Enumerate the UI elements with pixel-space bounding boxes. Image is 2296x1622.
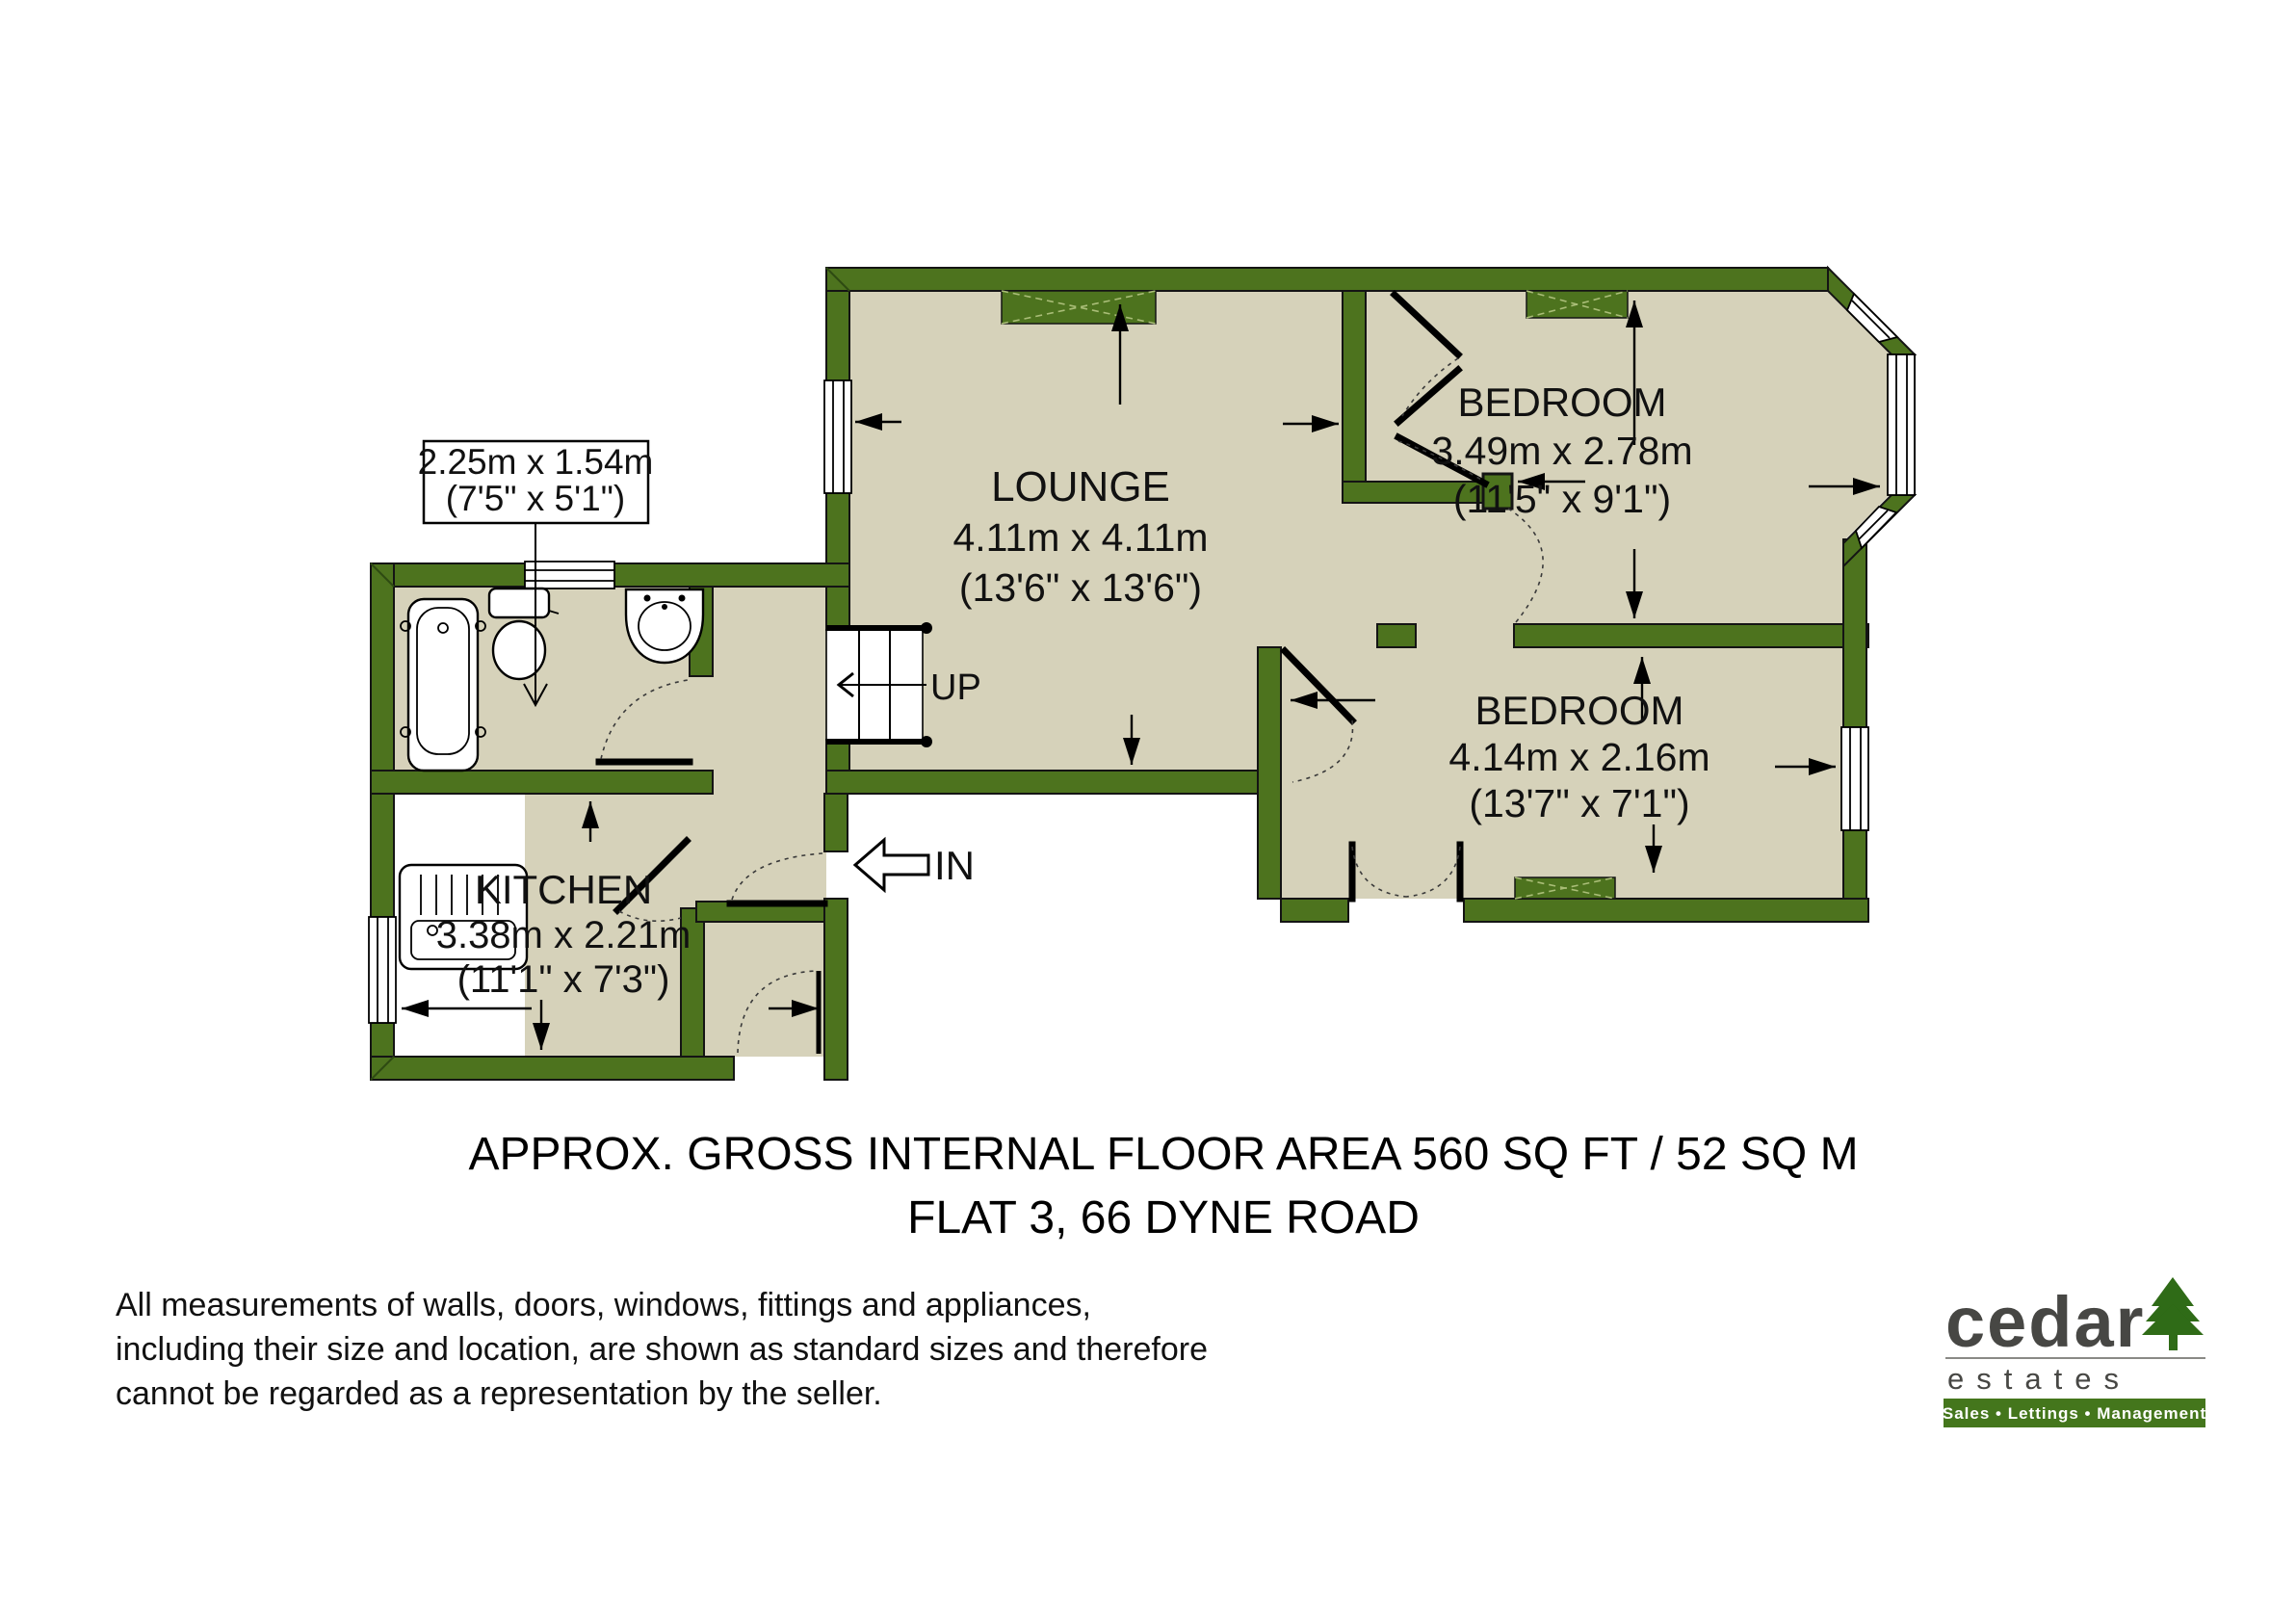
logo-sub-text: estates bbox=[1947, 1362, 2131, 1396]
lounge-window bbox=[824, 380, 851, 493]
bedroom1-name: BEDROOM bbox=[1457, 379, 1666, 425]
floorplan-drawing: UP bbox=[0, 0, 2296, 1622]
logo-brand-text: cedar bbox=[1945, 1282, 2145, 1362]
footer-titles: APPROX. GROSS INTERNAL FLOOR AREA 560 SQ… bbox=[468, 1129, 1858, 1243]
cedar-tree-icon bbox=[2142, 1277, 2204, 1350]
disclaimer: All measurements of walls, doors, window… bbox=[116, 1287, 1208, 1412]
address-title: FLAT 3, 66 DYNE ROAD bbox=[907, 1192, 1420, 1243]
lounge-name: LOUNGE bbox=[991, 463, 1170, 510]
entrance-in: IN bbox=[855, 840, 975, 890]
bedroom2-name: BEDROOM bbox=[1474, 688, 1683, 733]
bathroom-dim-metric: 2.25m x 1.54m bbox=[418, 442, 654, 482]
bathroom-dim-imperial: (7'5" x 5'1") bbox=[446, 479, 625, 518]
bathroom-window bbox=[525, 562, 614, 589]
entrance-in-icon bbox=[855, 840, 928, 890]
disclaimer-line2: including their size and location, are s… bbox=[116, 1331, 1208, 1368]
floor-area-title: APPROX. GROSS INTERNAL FLOOR AREA 560 SQ… bbox=[468, 1129, 1858, 1180]
bathtub-icon bbox=[401, 599, 485, 771]
bedroom1-dim-metric: 3.49m x 2.78m bbox=[1431, 429, 1692, 473]
logo-tagline: Sales • Lettings • Management bbox=[1943, 1404, 2206, 1423]
entrance-in-label: IN bbox=[934, 843, 975, 888]
agency-logo: cedar estates Sales • Lettings • Managem… bbox=[1943, 1277, 2206, 1427]
kitchen-name: KITCHEN bbox=[475, 867, 652, 912]
lounge-dim-metric: 4.11m x 4.11m bbox=[952, 515, 1208, 560]
basin-icon bbox=[626, 589, 703, 663]
bay-window-right bbox=[1888, 354, 1915, 495]
bedroom2-dim-metric: 4.14m x 2.16m bbox=[1448, 735, 1709, 779]
bedroom1-dim-imperial: (11'5" x 9'1") bbox=[1453, 477, 1671, 521]
kitchen-window bbox=[369, 917, 396, 1023]
disclaimer-line3: cannot be regarded as a representation b… bbox=[116, 1375, 882, 1412]
kitchen-dim-metric: 3.38m x 2.21m bbox=[436, 914, 691, 956]
lounge-dim-imperial: (13'6" x 13'6") bbox=[959, 565, 1202, 610]
bedroom2-window bbox=[1841, 727, 1868, 830]
kitchen-dim-imperial: (11'1" x 7'3") bbox=[457, 958, 670, 1001]
stairs-up-label: UP bbox=[930, 667, 981, 708]
disclaimer-line1: All measurements of walls, doors, window… bbox=[116, 1287, 1091, 1323]
floorplan-page: UP bbox=[0, 0, 2296, 1622]
bedroom2-dim-imperial: (13'7" x 7'1") bbox=[1469, 781, 1689, 825]
